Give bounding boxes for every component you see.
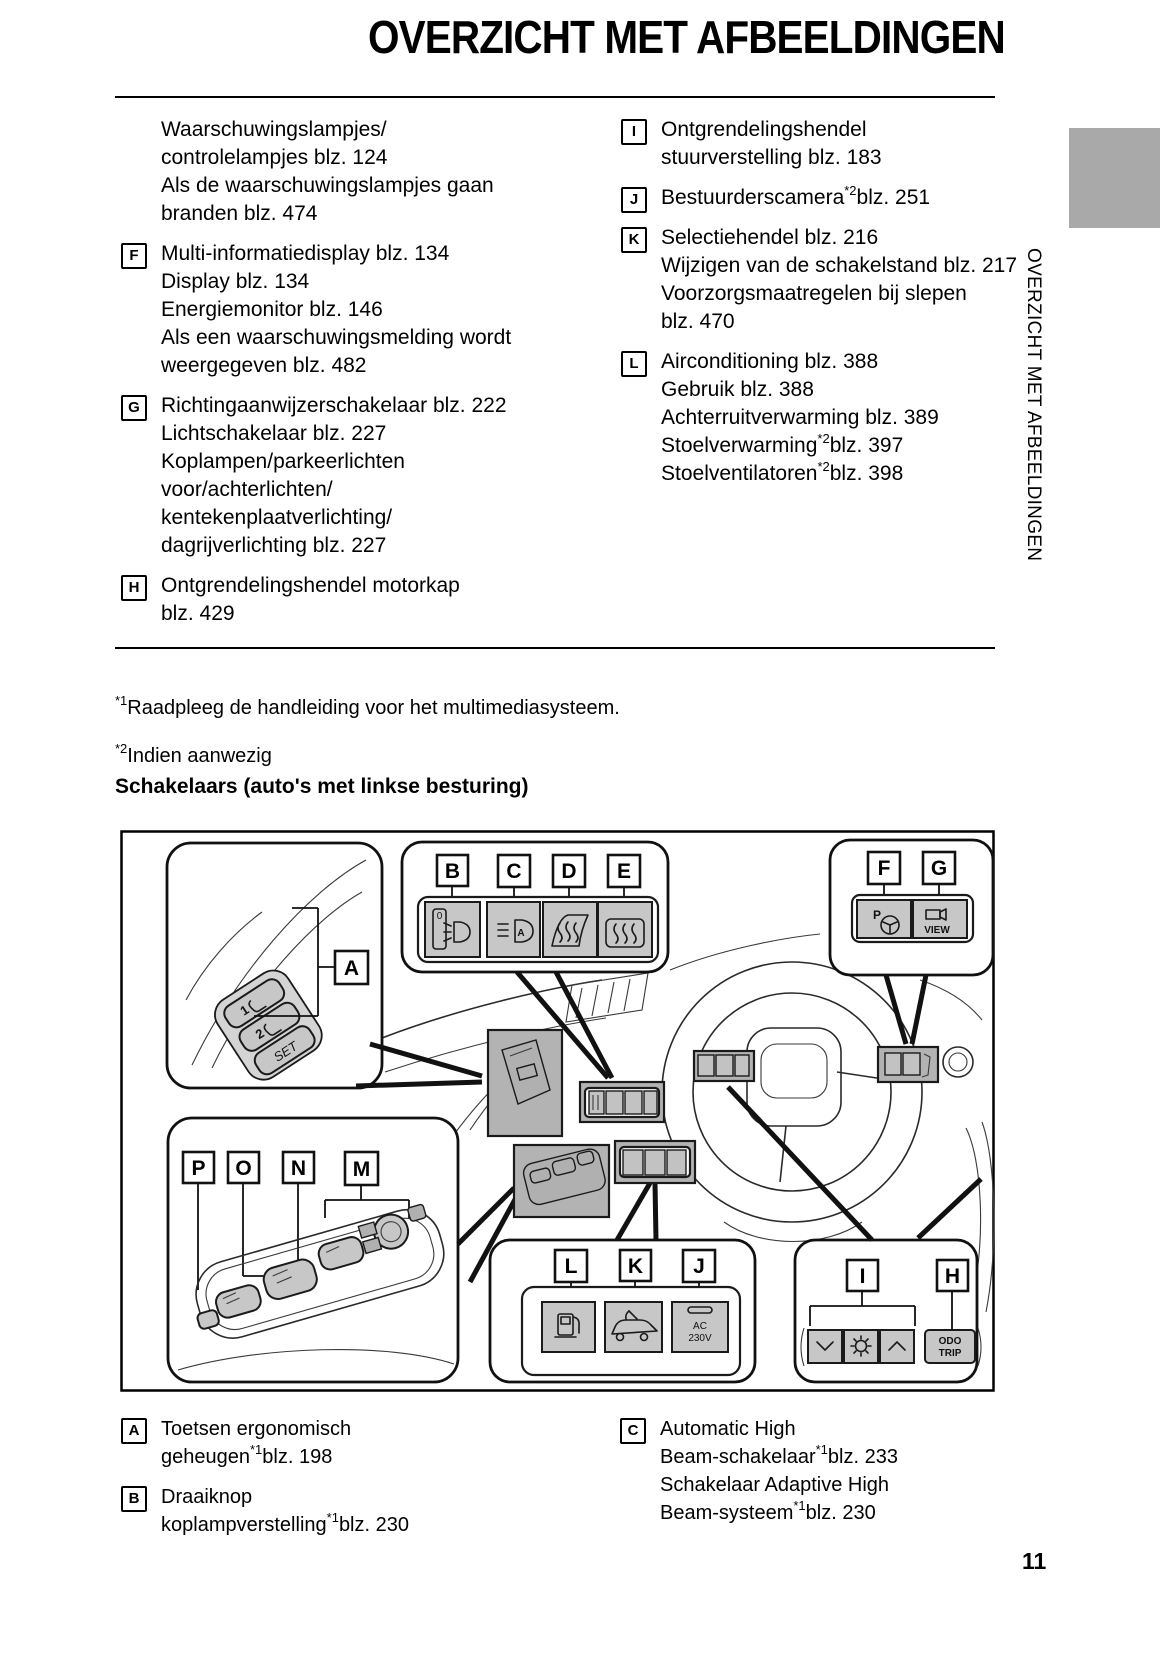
callout-M-label: M [353,1158,371,1181]
index-line: Toetsen ergonomisch [161,1415,561,1443]
callout-H-label: H [945,1265,960,1288]
index-line: branden blz. 474 [161,200,581,228]
footnote-1: *1Raadpleeg de handleiding voor het mult… [115,697,620,720]
item-letter-box: I [621,119,647,145]
index-entry: FMulti-informatiedisplay blz. 134Display… [121,240,581,380]
page-title: OVERZICHT MET AFBEELDINGEN [368,10,1005,64]
item-letter-box: K [621,227,647,253]
callout-G-label: G [931,857,947,880]
index-line: Beam-schakelaar*1blz. 233 [660,1443,1060,1471]
index-line: Automatic High [660,1415,1060,1443]
inset-steering-spoke-buttons [694,1051,754,1081]
mid-rule [115,647,995,649]
svg-text:TRIP: TRIP [939,1348,962,1359]
index-line: voor/achterlichten/ [161,476,581,504]
front-defrost-button [543,902,597,957]
index-line: Richtingaanwijzerschakelaar blz. 222 [161,392,581,420]
index-entry: AToetsen ergonomischgeheugen*1blz. 198 [121,1415,561,1471]
callout-A-label: A [344,957,359,980]
index-line: dagrijverlichting blz. 227 [161,532,581,560]
callout-L-label: L [565,1255,578,1278]
index-line: Beam-systeem*1blz. 230 [660,1499,1060,1527]
svg-text:230V: 230V [688,1333,712,1344]
index-line: Gebruik blz. 388 [661,376,1071,404]
item-letter-box: L [621,351,647,377]
callout-N-label: N [291,1157,306,1180]
item-letter-box: G [121,395,147,421]
index-line: Als de waarschuwingslampjes gaan [161,172,581,200]
index-line: controlelampjes blz. 124 [161,144,581,172]
dimmer-brightness-button [844,1330,878,1363]
top-rule [115,96,995,98]
index-line: Waarschuwingslampjes/ [161,116,581,144]
svg-text:0: 0 [437,911,443,922]
index-line: weergegeven blz. 482 [161,352,581,380]
index-line: Stoelverwarming*2blz. 397 [661,432,1071,460]
index-line: Achterruitverwarming blz. 389 [661,404,1071,432]
svg-text:VIEW: VIEW [924,925,950,936]
index-entry: CAutomatic HighBeam-schakelaar*1blz. 233… [620,1415,1060,1527]
index-line: Multi-informatiedisplay blz. 134 [161,240,581,268]
index-line: Ontgrendelingshendel motorkap [161,572,581,600]
item-letter-box: H [121,575,147,601]
index-line: Display blz. 134 [161,268,581,296]
callout-C-label: C [506,860,521,883]
index-line: Stoelventilatoren*2blz. 398 [661,460,1071,488]
inset-lower-switch-row [615,1141,695,1183]
callout-O-label: O [235,1157,251,1180]
fuel-door-button [542,1302,595,1352]
dimmer-down-button [808,1330,842,1363]
index-line: Ontgrendelingshendel [661,116,1071,144]
item-letter-box: C [620,1418,646,1444]
index-line: Energiemonitor blz. 146 [161,296,581,324]
svg-text:P: P [873,908,881,922]
item-letter-box: B [121,1486,147,1512]
index-line: Wijzigen van de schakelstand blz. 217 [661,252,1071,280]
index-line: Als een waarschuwingsmelding wordt [161,324,581,352]
index-entry: IOntgrendelingshendelstuurverstelling bl… [621,116,1071,172]
svg-text:A: A [517,928,524,939]
item-letter-box: F [121,243,147,269]
inset-cluster-switch-row [580,1082,664,1122]
index-entry: HOntgrendelingshendel motorkapblz. 429 [121,572,581,628]
callout-D-label: D [561,860,576,883]
index-line: blz. 470 [661,308,1071,336]
index-line: Selectiehendel blz. 216 [661,224,1071,252]
index-column-left: Waarschuwingslampjes/controlelampjes blz… [121,116,581,640]
index-column-right: IOntgrendelingshendelstuurverstelling bl… [621,116,1071,500]
auto-high-beam-button [487,902,540,957]
index-entry: KSelectiehendel blz. 216Wijzigen van de … [621,224,1071,336]
chapter-tab [1069,128,1160,228]
index-line: Draaiknop [161,1483,561,1511]
index-entry: BDraaiknopkoplampverstelling*1blz. 230 [121,1483,561,1539]
callout-P-label: P [191,1157,205,1180]
index-line: kentekenplaatverlichting/ [161,504,581,532]
callout-K-label: K [628,1255,643,1278]
callout-F-label: F [878,857,891,880]
dimmer-up-button [880,1330,914,1363]
footnote-2: *2Indien aanwezig [115,745,272,768]
index-line: Lichtschakelaar blz. 227 [161,420,581,448]
index-line: koplampverstelling*1blz. 230 [161,1511,561,1539]
callout-I-label: I [860,1265,866,1288]
callout-E-label: E [617,860,631,883]
index-line: stuurverstelling blz. 183 [661,144,1071,172]
index-line: Bestuurderscamera*2blz. 251 [661,184,1071,212]
lkj-switch-panel: L K J [522,1250,740,1375]
inset-armrest-switches [514,1145,609,1217]
bottom-index-right: CAutomatic HighBeam-schakelaar*1blz. 233… [620,1415,1060,1539]
page-number: 11 [1022,1548,1046,1575]
index-entry: JBestuurderscamera*2blz. 251 [621,184,1071,212]
index-line: Airconditioning blz. 388 [661,348,1071,376]
index-line: Koplampen/parkeerlichten [161,448,581,476]
index-entry: GRichtingaanwijzerschakelaar blz. 222Lic… [121,392,581,560]
svg-text:ODO: ODO [939,1336,962,1347]
callout-J-label: J [693,1255,705,1278]
index-line: blz. 429 [161,600,581,628]
item-letter-box: A [121,1418,147,1444]
inset-door-pull-switch [488,1030,562,1136]
manual-page: OVERZICHT MET AFBEELDINGEN Waarschuwings… [0,0,1165,1653]
dashboard-diagram: 1 2 SET A B C D E [120,830,995,1392]
index-entry: LAirconditioning blz. 388Gebruik blz. 38… [621,348,1071,488]
svg-text:AC: AC [693,1321,707,1332]
callout-B-label: B [445,860,460,883]
index-entry: Waarschuwingslampjes/controlelampjes blz… [121,116,581,228]
inset-column-switch [878,1047,938,1082]
index-line: Schakelaar Adaptive High [660,1471,1060,1499]
item-letter-box: J [621,187,647,213]
index-line: geheugen*1blz. 198 [161,1443,561,1471]
sidebar-vertical-label: OVERZICHT MET AFBEELDINGEN [1022,248,1044,561]
bottom-index-left: AToetsen ergonomischgeheugen*1blz. 198BD… [121,1415,561,1551]
index-line: Voorzorgsmaatregelen bij slepen [661,280,1071,308]
section-heading: Schakelaars (auto's met linkse besturing… [115,775,528,799]
